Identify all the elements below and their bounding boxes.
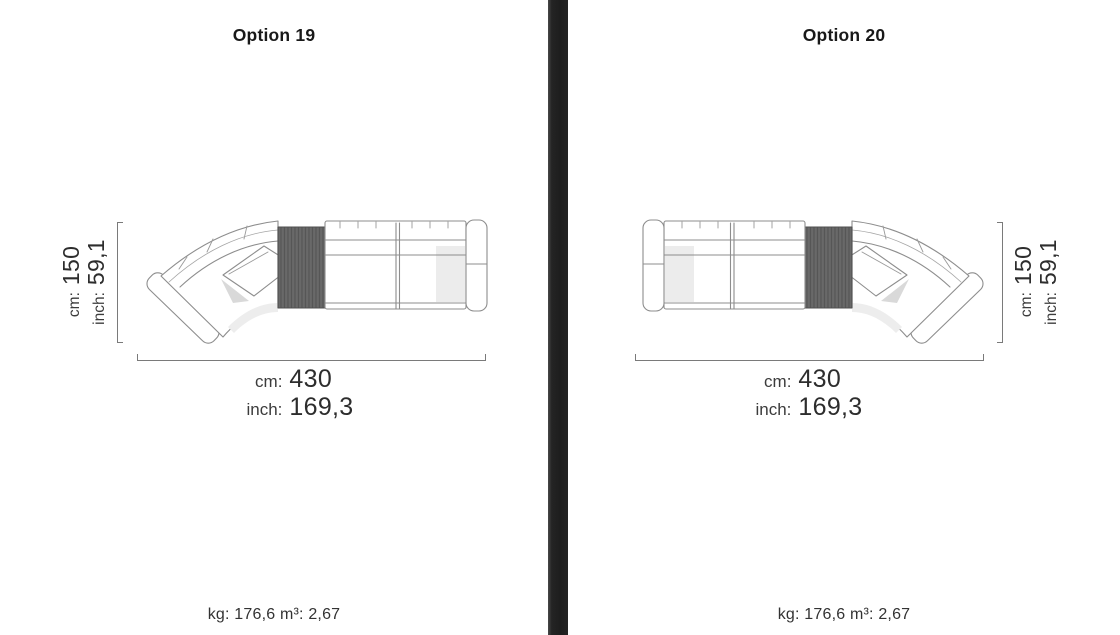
sofa-console-table [805,227,852,308]
catalog-page: Option 19 [0,0,1120,635]
option-20-panel: Option 20 [568,0,1120,635]
width-cm-label: cm: [247,373,283,392]
depth-cm-label: cm: [1018,292,1035,325]
sofa-seat-section [664,221,805,309]
sofa-chaise-section [144,221,294,346]
width-cm-value: 430 [289,366,353,394]
depth-cm-value: 150 [59,239,84,285]
depth-inch-value: 59,1 [1036,239,1061,285]
sofa-armrest [466,220,487,311]
depth-dimension-bracket [997,222,1003,343]
width-dimension-label: cm: 430 inch: 169,3 [659,366,959,421]
option-title: Option 19 [0,25,548,46]
depth-cm-label: cm: [66,292,83,325]
width-inch-label: inch: [247,401,283,420]
depth-inch-label: inch: [1043,292,1060,325]
weight-volume-label: kg: 176,6 m³: 2,67 [0,606,548,624]
depth-inch-value: 59,1 [84,239,109,285]
width-dimension-label: cm: 430 inch: 169,3 [150,366,450,421]
depth-cm-value: 150 [1011,239,1036,285]
weight-volume-label: kg: 176,6 m³: 2,67 [568,606,1120,624]
sofa-armrest [643,220,664,311]
sofa-seat-section [325,221,466,309]
option-title: Option 20 [568,25,1120,46]
sofa-chaise-section [836,221,986,346]
depth-dimension-label: cm: 150 inch: 59,1 [59,212,117,352]
depth-dimension-label: cm: 150 inch: 59,1 [1011,212,1069,352]
width-inch-value: 169,3 [289,394,353,422]
width-inch-value: 169,3 [798,394,862,422]
depth-inch-label: inch: [91,292,108,325]
page-divider [548,0,568,635]
width-inch-label: inch: [756,401,792,420]
width-dimension-bracket [137,354,486,361]
width-dimension-bracket [635,354,984,361]
sofa-top-view-drawing [135,215,495,355]
width-cm-label: cm: [756,373,792,392]
depth-dimension-bracket [117,222,123,343]
width-cm-value: 430 [798,366,862,394]
sofa-top-view-drawing [635,215,995,355]
option-19-panel: Option 19 [0,0,548,635]
sofa-console-table [278,227,325,308]
